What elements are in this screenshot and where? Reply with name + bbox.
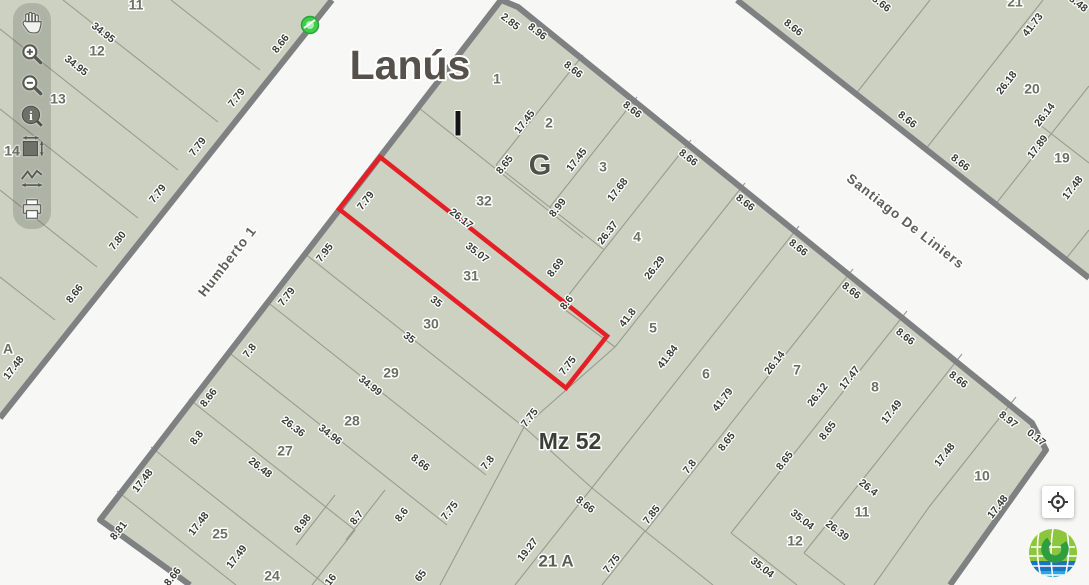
parcel-number: 12: [89, 43, 105, 59]
company-logo: [1027, 523, 1079, 585]
parcel-number: 21: [1007, 0, 1023, 10]
block-label: Mz 52: [539, 428, 602, 454]
parcel-number: 4: [633, 229, 641, 245]
pan-tool-button[interactable]: [17, 8, 47, 38]
parcel-number: 7: [793, 362, 801, 378]
zoom-out-tool-button[interactable]: [17, 70, 47, 100]
parcel-number: 20: [1024, 81, 1040, 97]
parcel-number: 2: [545, 115, 553, 131]
gis-map-viewer: IG1134.951234.951314A8.667.797.797.797.8…: [0, 0, 1089, 585]
parcel-number: 27: [277, 443, 293, 459]
parcel-number: 29: [383, 365, 399, 381]
parcel-number: 1: [493, 71, 501, 87]
crosshair-icon: [1047, 491, 1069, 513]
parcel-number: 31: [463, 268, 479, 284]
svg-text:i: i: [29, 108, 33, 123]
parcel-number: 6: [702, 366, 710, 382]
map-canvas[interactable]: IG1134.951234.951314A8.667.797.797.797.8…: [0, 0, 1089, 585]
print-tool-button[interactable]: [17, 194, 47, 224]
info-icon: i: [19, 103, 45, 129]
section-letter: I: [453, 104, 463, 143]
parcel-number: 25: [212, 526, 228, 542]
print-icon: [19, 196, 45, 222]
zoom-in-tool-button[interactable]: [17, 39, 47, 69]
locate-button[interactable]: [1042, 486, 1074, 518]
measure-icon: [19, 165, 45, 191]
parcel-number: 10: [974, 468, 990, 484]
identify-tool-button[interactable]: i: [17, 101, 47, 131]
globe-logo-icon: [1027, 523, 1079, 585]
hand-icon: [19, 10, 45, 36]
parcel-number: 28: [344, 413, 360, 429]
measure-tool-button[interactable]: [17, 163, 47, 193]
zoom-out-icon: [19, 72, 45, 98]
parcel-number: 19: [1054, 150, 1070, 166]
map-toolbar: i: [13, 3, 51, 229]
parcel-number: 30: [423, 316, 439, 332]
full-extent-tool-button[interactable]: [17, 132, 47, 162]
parcel-number: 5: [649, 320, 657, 336]
extent-icon: [19, 134, 45, 160]
section-letter: G: [529, 150, 552, 182]
city-label: Lanús: [350, 42, 471, 88]
parcel-number: 3: [599, 159, 607, 175]
zoom-in-icon: [19, 41, 45, 67]
parcel-number: 21 A: [538, 551, 573, 570]
parcel-number: 24: [264, 568, 280, 584]
parcel-number: 11: [129, 0, 144, 13]
parcel-number: 11: [855, 504, 870, 520]
parcel-number: 12: [787, 533, 803, 549]
parcel-number: 13: [50, 91, 66, 107]
parcel-number: 32: [476, 193, 492, 209]
parcel-number: A: [3, 341, 13, 357]
parcel-number: 8: [871, 379, 879, 395]
